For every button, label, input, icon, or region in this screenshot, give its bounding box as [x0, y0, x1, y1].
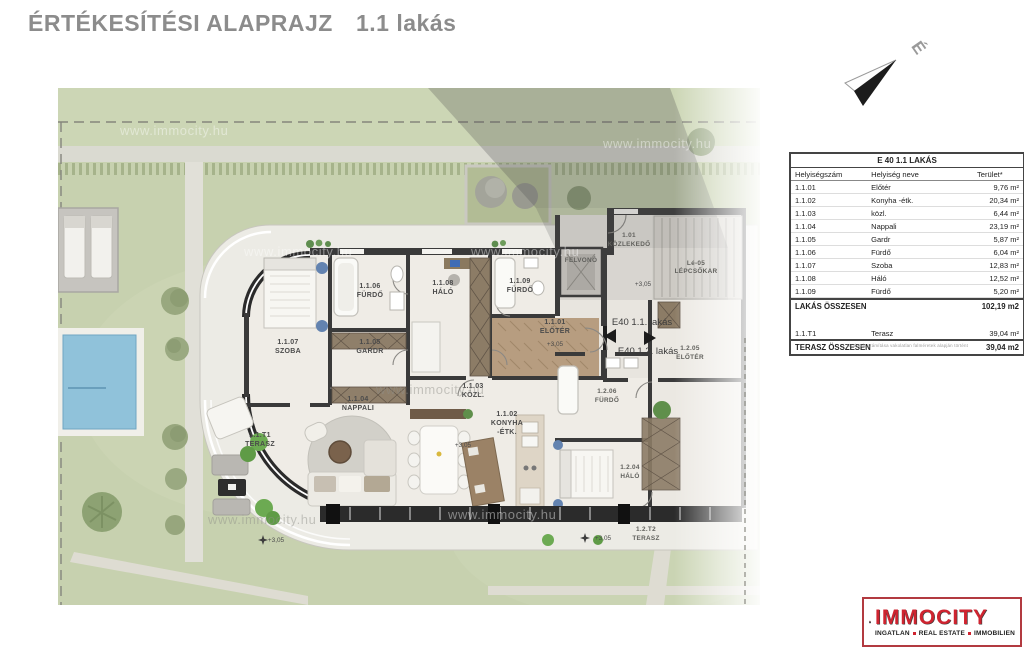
svg-text:FÜRDŐ: FÜRDŐ	[357, 290, 384, 299]
page-title: ÉRTÉKESÍTÉSI ALAPRAJZ	[28, 10, 333, 37]
red-square-bullet	[913, 632, 916, 635]
terrace-row: 1.1.T1Terasz39,04 m²	[791, 327, 1023, 339]
area-table-header: Helyiségszám Helyiség neve Terület*	[791, 168, 1023, 181]
svg-text:NAPPALI: NAPPALI	[342, 405, 374, 412]
svg-text:www.immocity.hu: www.immocity.hu	[207, 512, 316, 527]
svg-text:FÜRDŐ: FÜRDŐ	[595, 395, 619, 404]
red-square-bullet	[968, 632, 971, 635]
north-compass: É	[836, 20, 976, 120]
table-row: 1.1.02Konyha -étk.20,34 m²	[791, 194, 1023, 207]
svg-text:HÁLÓ: HÁLÓ	[620, 471, 639, 480]
living-room-furniture	[303, 416, 396, 506]
table-row: 1.1.05Gardr5,87 m²	[791, 233, 1023, 246]
table-row: 1.1.08Háló12,52 m²	[791, 272, 1023, 285]
neighbor-pergola	[58, 208, 118, 292]
svg-text:-ÉTK.: -ÉTK.	[497, 427, 517, 436]
level-mark: +3,05	[635, 281, 652, 288]
svg-text:www.immocity.hu: www.immocity.hu	[470, 244, 579, 259]
immocity-logo: IMMOCITY INGATLAN REAL ESTATE IMMOBILIEN	[862, 597, 1022, 647]
unit-marker-11: E40 1.1. lakás	[612, 317, 672, 328]
level-mark: +3,05	[455, 442, 472, 449]
table-row: 1.1.09Fürdő5,20 m²	[791, 285, 1023, 298]
svg-text:www.immocity.hu: www.immocity.hu	[375, 382, 484, 397]
site-plan: 1.1.01 ELŐTÉR +3,05 1.1.02 KONYHA -ÉTK. …	[58, 88, 760, 605]
svg-text:HÁLÓ: HÁLÓ	[432, 287, 453, 296]
area-table: E 40 1.1 LAKÁS Helyiségszám Helyiség nev…	[789, 152, 1024, 356]
level-mark: +3,05	[595, 535, 612, 542]
logo-name: IMMOCITY	[875, 607, 1015, 629]
svg-text:KONYHA: KONYHA	[491, 420, 523, 427]
svg-text:LÉPCSŐKAR: LÉPCSŐKAR	[675, 266, 718, 275]
logo-tagline: INGATLAN REAL ESTATE IMMOBILIEN	[875, 630, 1015, 637]
svg-text:TERASZ: TERASZ	[245, 441, 275, 448]
room-label-terasz1: 1.1.T1	[249, 432, 271, 439]
svg-text:www.immocity.hu: www.immocity.hu	[243, 244, 352, 259]
table-row: 1.1.01Előtér9,76 m²	[791, 181, 1023, 194]
apartment-total-row: LAKÁS ÖSSZESEN102,19 m2	[791, 298, 1023, 313]
table-row: 1.1.04Nappali23,19 m²	[791, 220, 1023, 233]
level-mark: +3,05	[547, 341, 564, 348]
svg-text:SZOBA: SZOBA	[275, 348, 301, 355]
level-mark: +3,05	[268, 537, 285, 544]
svg-text:www.immocity.hu: www.immocity.hu	[119, 123, 228, 138]
room-label-nappali: 1.1.04	[347, 396, 368, 403]
svg-text:TERASZ: TERASZ	[632, 535, 659, 542]
room-label-gardr: 1.1.05	[359, 339, 380, 346]
room-label-furdo1: 1.1.06	[359, 283, 380, 290]
room-label-szoba: 1.1.07	[277, 339, 298, 346]
room-label-lepcso: Lé-05	[687, 260, 705, 267]
room-label-halo: 1.1.08	[432, 280, 453, 287]
area-table-title: E 40 1.1 LAKÁS	[791, 154, 1023, 168]
room-label-konyha: 1.1.02	[496, 411, 517, 418]
table-spacer	[791, 313, 1023, 327]
table-footnote: Területek számítása vakolatlan falmérete…	[789, 343, 1024, 348]
room-label-furdo2: 1.1.09	[509, 278, 530, 285]
unit-marker-12: E40 1.2. lakás	[618, 346, 678, 357]
room-label-12furdo: 1.2.06	[597, 388, 617, 395]
immocity-logo-mark	[869, 603, 871, 641]
table-row: 1.1.03közl.6,44 m²	[791, 207, 1023, 220]
room-label-eloter: 1.1.01	[544, 319, 565, 326]
svg-text:GARDR: GARDR	[356, 348, 383, 355]
entry-wood-floor	[492, 318, 599, 376]
pool	[58, 328, 144, 436]
svg-text:ELŐTÉR: ELŐTÉR	[540, 326, 570, 335]
svg-text:KÖZLEKEDŐ: KÖZLEKEDŐ	[608, 239, 651, 248]
floorplan-sheet: { "page": { "title": "ÉRTÉKESÍTÉSI ALAPR…	[0, 0, 1024, 650]
svg-text:FÜRDŐ: FÜRDŐ	[507, 285, 534, 294]
room-label-12halo: 1.2.04	[620, 464, 640, 471]
table-row: 1.1.07Szoba12,83 m²	[791, 259, 1023, 272]
svg-text:ELŐTÉR: ELŐTÉR	[676, 352, 704, 361]
room-label-kozlekedo: 1.01	[622, 232, 636, 239]
apartment-title: 1.1 lakás	[356, 10, 456, 37]
table-row: 1.1.06Fürdő6,04 m²	[791, 246, 1023, 259]
svg-text:www.immocity.hu: www.immocity.hu	[447, 507, 556, 522]
svg-text:www.immocity.hu: www.immocity.hu	[602, 136, 711, 151]
room-label-12eloter: 1.2.05	[680, 345, 700, 352]
north-label: É	[907, 38, 929, 58]
room-label-12terasz: 1.2.T2	[636, 526, 656, 533]
